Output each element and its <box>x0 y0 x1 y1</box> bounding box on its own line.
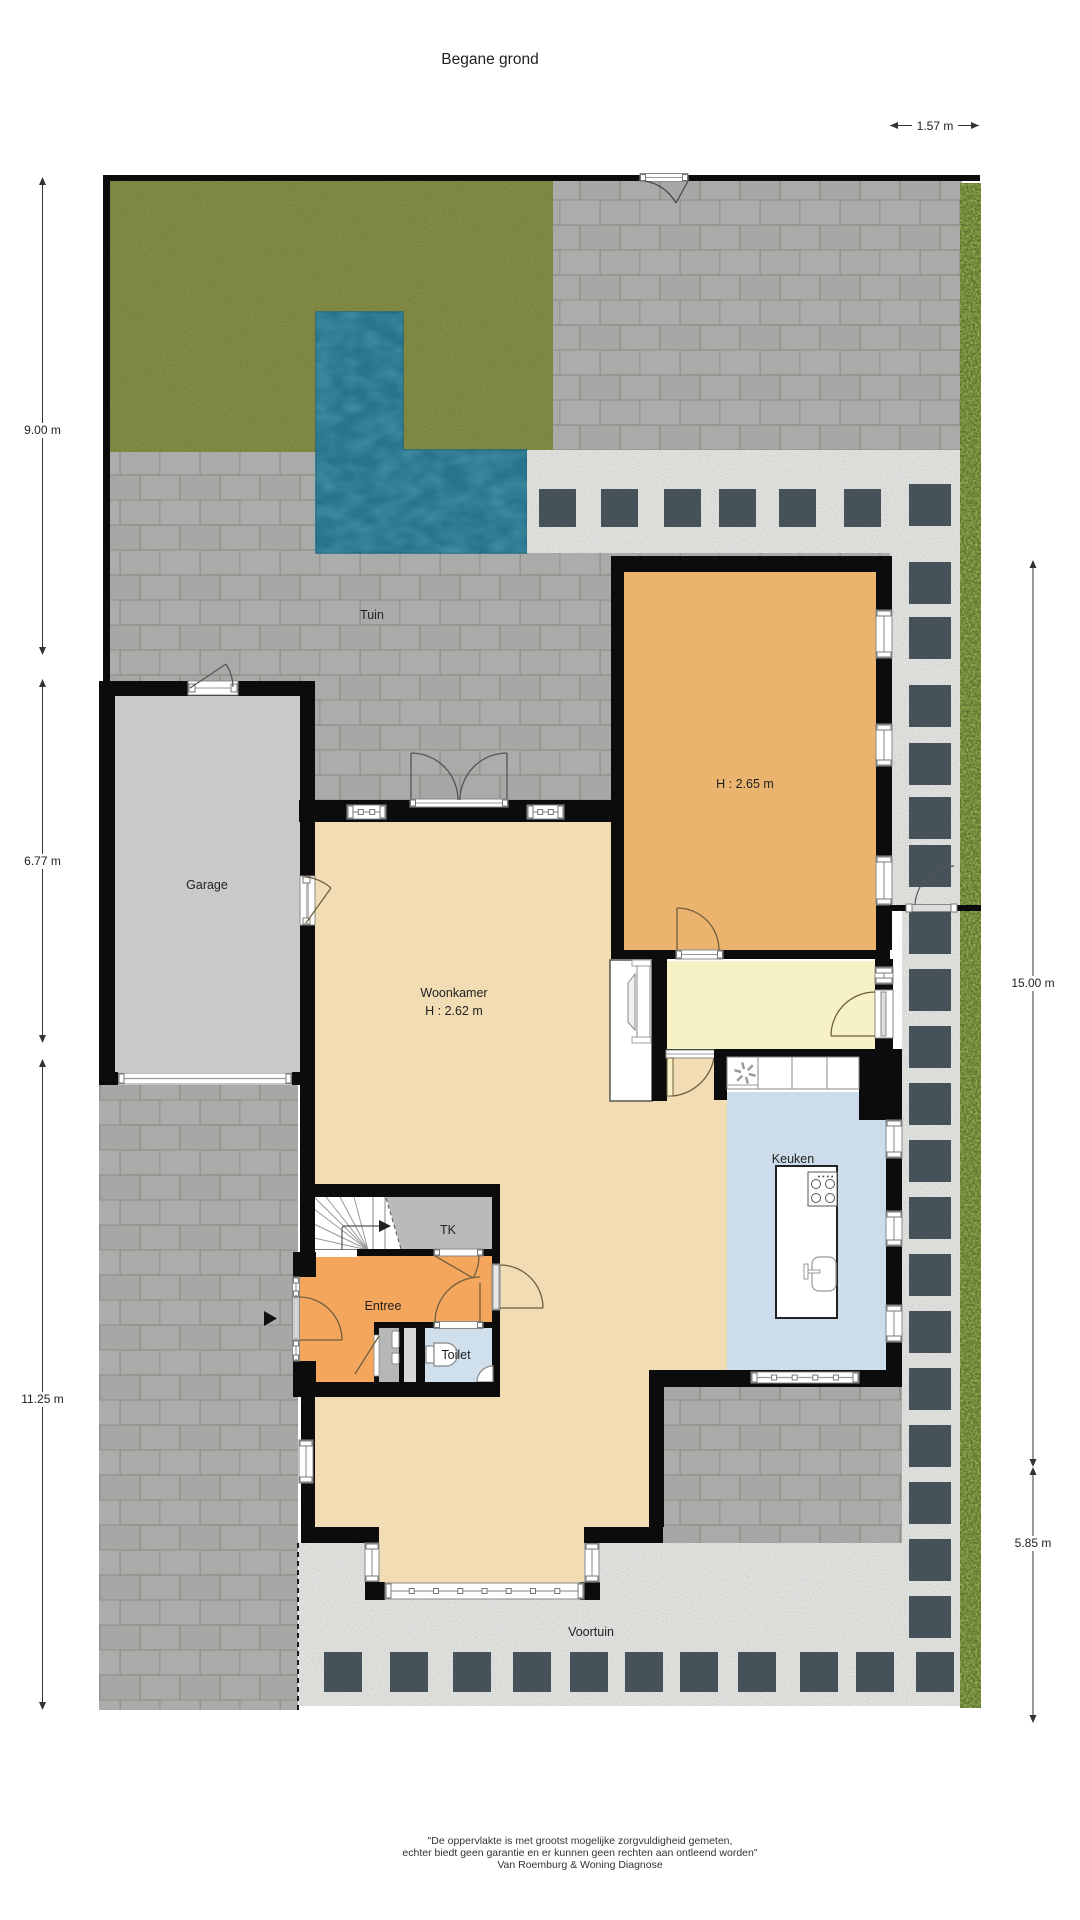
svg-text:1.57 m: 1.57 m <box>917 119 954 133</box>
svg-text:9.00 m: 9.00 m <box>24 423 61 437</box>
svg-text:11.25 m: 11.25 m <box>21 1392 63 1406</box>
svg-text:TK: TK <box>440 1223 457 1237</box>
svg-text:5.85 m: 5.85 m <box>1015 1536 1052 1550</box>
svg-text:Toilet: Toilet <box>441 1348 471 1362</box>
svg-text:Voortuin: Voortuin <box>568 1625 614 1639</box>
svg-text:Garage: Garage <box>186 878 228 892</box>
svg-text:Woonkamer: Woonkamer <box>420 986 487 1000</box>
svg-text:Tuin: Tuin <box>360 608 384 622</box>
svg-text:H : 2.65 m: H : 2.65 m <box>716 777 774 791</box>
svg-text:"De oppervlakte is met grootst: "De oppervlakte is met grootst mogelijke… <box>428 1835 733 1847</box>
svg-text:Begane grond: Begane grond <box>441 51 538 68</box>
svg-text:echter biedt geen garantie en: echter biedt geen garantie en er kunnen … <box>402 1847 757 1859</box>
svg-text:6.77 m: 6.77 m <box>24 854 61 868</box>
svg-text:Van Roemburg & Woning Diagnose: Van Roemburg & Woning Diagnose <box>497 1859 663 1871</box>
svg-text:Entree: Entree <box>365 1299 402 1313</box>
svg-text:15.00 m: 15.00 m <box>1011 976 1054 990</box>
svg-text:Keuken: Keuken <box>772 1152 814 1166</box>
svg-text:H : 2.62 m: H : 2.62 m <box>425 1004 483 1018</box>
